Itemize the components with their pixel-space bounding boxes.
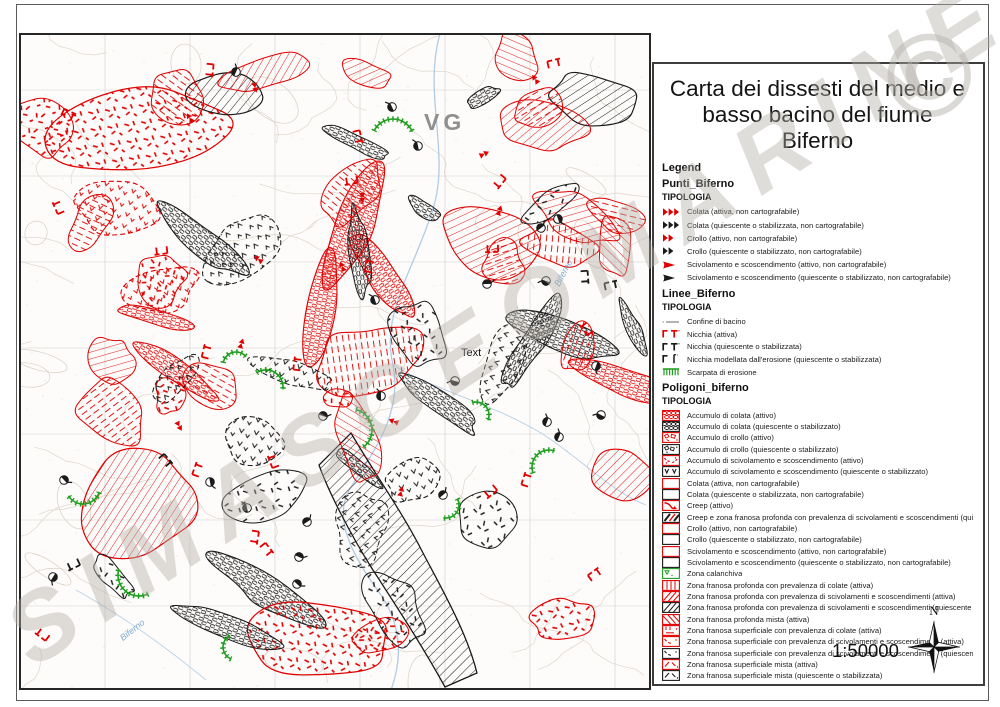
legend-item-label: Confine di bacino <box>687 317 746 326</box>
legend-section-subheader: TIPOLOGIA <box>662 302 973 312</box>
arrow1-black-icon <box>662 273 682 283</box>
chain-black-icon <box>662 421 682 432</box>
legend-section-title: Punti_Biferno <box>662 178 973 190</box>
scale-text: 1:50000 <box>832 640 899 662</box>
legend-item-label: Scivolamento e scoscendimento (attivo, n… <box>687 547 886 556</box>
legend-header: Legend <box>662 162 973 174</box>
legend-item-label: Colata (attiva, non cartografabile) <box>687 207 799 216</box>
legend-item-label: Colata (attiva, non cartografabile) <box>687 479 799 488</box>
legend-item: Accumulo di crollo (attivo) <box>662 432 973 443</box>
legend-item-label: Zona franosa profonda con prevalenza di … <box>687 592 955 601</box>
map-canvas <box>21 35 649 688</box>
legend-item-label: Accumulo di scivolamento e scoscendiment… <box>687 467 928 476</box>
legend-section-punti_biferno: Punti_BifernoTIPOLOGIAColata (attiva, no… <box>662 178 973 284</box>
legend-item: Accumulo di scivolamento e scoscendiment… <box>662 466 973 477</box>
legend-item-label: Zona franosa superficiale mista (quiesce… <box>687 671 882 680</box>
legend-item-label: Scivolamento e scoscendimento (quiescent… <box>687 558 951 567</box>
varc-red-icon <box>662 455 682 466</box>
rect-black-icon <box>662 534 682 545</box>
legend-item: Nicchia modellata dall'erosione (quiesce… <box>662 353 973 366</box>
legend-item-label: Crollo (quiescente o stabilizzato, non c… <box>687 247 862 256</box>
supsciv-black-icon <box>662 648 682 659</box>
creep-red-icon <box>662 500 682 511</box>
legend-item-label: Accumulo di scivolamento e scoscendiment… <box>687 456 863 465</box>
creep-mix-icon <box>662 512 682 523</box>
legend-item: Accumulo di crollo (quiescente o stabili… <box>662 443 973 454</box>
rect-black-icon <box>662 557 682 568</box>
calanchiva-green-icon <box>662 568 682 579</box>
vv-black-icon <box>662 466 682 477</box>
legend-item-label: Scivolamento e scoscendimento (quiescent… <box>687 273 951 282</box>
legend-item: Scivolamento e scoscendimento (quiescent… <box>662 271 973 284</box>
chain-red-icon <box>662 410 682 421</box>
legend-item: Colata (quiescente o stabilizzata, non c… <box>662 218 973 231</box>
supmista-red-icon <box>662 659 682 670</box>
legend-item: Scivolamento e scoscendimento (quiescent… <box>662 557 973 568</box>
arrow1-red-icon <box>662 260 682 270</box>
legend-item-label: Accumulo di crollo (attivo) <box>687 433 774 442</box>
legend-item-label: Accumulo di colata (quiescente o stabili… <box>687 422 841 431</box>
legend-item: Scivolamento e scoscendimento (attivo, n… <box>662 546 973 557</box>
legend-item: Zona franosa profonda con prevalenza di … <box>662 591 973 602</box>
blocks-red-icon <box>662 432 682 443</box>
rect-red-icon <box>662 478 682 489</box>
legend-item-label: Nicchia (quiescente o stabilizzata) <box>687 342 802 351</box>
bdiag-red-icon <box>662 614 682 625</box>
supsciv-red-icon <box>662 636 682 647</box>
compass: N <box>903 603 965 680</box>
legend-item-label: Creep e zona franosa profonda con preval… <box>687 513 973 522</box>
legend-item: Accumulo di colata (quiescente o stabili… <box>662 421 973 432</box>
legend-item: Nicchia (quiescente o stabilizzata) <box>662 341 973 354</box>
supcol-red-icon <box>662 625 682 636</box>
north-arrow-icon <box>906 619 962 675</box>
legend-item-label: Crollo (attivo, non cartografabile) <box>687 524 797 533</box>
page: VG Text Biferno Biferno Carta dei disses… <box>0 0 1000 707</box>
legend-item: Scarpata di erosione <box>662 366 973 379</box>
legend-item: Scivolamento e scoscendimento (attivo, n… <box>662 258 973 271</box>
legend-item: Crollo (quiescente o stabilizzato, non c… <box>662 245 973 258</box>
legend-item: Zona franosa profonda con prevalenza di … <box>662 580 973 591</box>
arrow2-red-icon <box>662 233 682 243</box>
legend-item: Nicchia (attiva) <box>662 328 973 341</box>
rect-red-icon <box>662 523 682 534</box>
arrow2-black-icon <box>662 246 682 256</box>
legend-section-subheader: TIPOLOGIA <box>662 192 973 202</box>
legend-item-label: Crollo (quiescente o stabilizzato, non c… <box>687 535 862 544</box>
map-frame <box>19 33 651 690</box>
legend-item-label: Zona franosa profonda con prevalenza di … <box>687 581 873 590</box>
nicchia-erosione-icon <box>662 354 682 364</box>
legend-item: Creep e zona franosa profonda con preval… <box>662 511 973 522</box>
scarpata-green-icon <box>662 367 682 377</box>
legend-item: Crollo (attivo, non cartografabile) <box>662 523 973 534</box>
north-label: N <box>903 603 965 619</box>
legend-item: Colata (attiva, non cartografabile) <box>662 205 973 218</box>
legend-item: Accumulo di colata (attivo) <box>662 409 973 420</box>
legend-item-label: Nicchia modellata dall'erosione (quiesce… <box>687 355 881 364</box>
legend-item: Colata (quiescente o stabilizzata, non c… <box>662 489 973 500</box>
arrow3-black-icon <box>662 220 682 230</box>
page-title: Carta dei dissesti del medio e basso bac… <box>666 76 969 154</box>
supmista-black-icon <box>662 670 682 681</box>
map-label-text: Text <box>461 347 481 359</box>
legend-item: Confine di bacino <box>662 315 973 328</box>
diag-red-icon <box>662 591 682 602</box>
legend-item-label: Zona franosa superficiale mista (attiva) <box>687 660 818 669</box>
nicchia-black-icon <box>662 342 682 352</box>
legend-item-label: Scivolamento e scoscendimento (attivo, n… <box>687 260 886 269</box>
legend-panel: Carta dei dissesti del medio e basso bac… <box>652 62 985 686</box>
diag-black-icon <box>662 602 682 613</box>
rect-black-icon <box>662 489 682 500</box>
legend-item-label: Scarpata di erosione <box>687 368 757 377</box>
legend-item-label: Colata (quiescente o stabilizzata, non c… <box>687 221 864 230</box>
blocks-black-icon <box>662 444 682 455</box>
legend-item-label: Crollo (attivo, non cartografabile) <box>687 234 797 243</box>
line-confine-icon <box>662 317 682 327</box>
legend-section-subheader: TIPOLOGIA <box>662 396 973 406</box>
legend-item: Crollo (quiescente o stabilizzato, non c… <box>662 534 973 545</box>
legend-item-label: Accumulo di colata (attivo) <box>687 411 776 420</box>
rect-red-icon <box>662 546 682 557</box>
legend-item-label: Zona calanchiva <box>687 569 742 578</box>
legend-item-label: Zona franosa superficiale con prevalenza… <box>687 626 882 635</box>
vbars-red-icon <box>662 580 682 591</box>
legend-item: Creep (attivo) <box>662 500 973 511</box>
legend-item-label: Creep (attivo) <box>687 501 733 510</box>
legend-item-label: Accumulo di crollo (quiescente o stabili… <box>687 445 839 454</box>
legend-item-label: Nicchia (attiva) <box>687 330 737 339</box>
legend-section-title: Poligoni_biferno <box>662 382 973 394</box>
legend-item: Crollo (attivo, non cartografabile) <box>662 232 973 245</box>
legend-item-label: Zona franosa profonda mista (attiva) <box>687 615 809 624</box>
legend-section-title: Linee_Biferno <box>662 288 973 300</box>
map-label-vg: VG <box>424 109 465 136</box>
arrow3-red-icon <box>662 207 682 217</box>
legend-item: Accumulo di scivolamento e scoscendiment… <box>662 455 973 466</box>
legend-item: Zona calanchiva <box>662 568 973 579</box>
nicchia-red-icon <box>662 329 682 339</box>
legend-item-label: Colata (quiescente o stabilizzata, non c… <box>687 490 864 499</box>
legend-section-linee_biferno: Linee_BifernoTIPOLOGIAConfine di bacinoN… <box>662 288 973 378</box>
legend-item: Colata (attiva, non cartografabile) <box>662 477 973 488</box>
